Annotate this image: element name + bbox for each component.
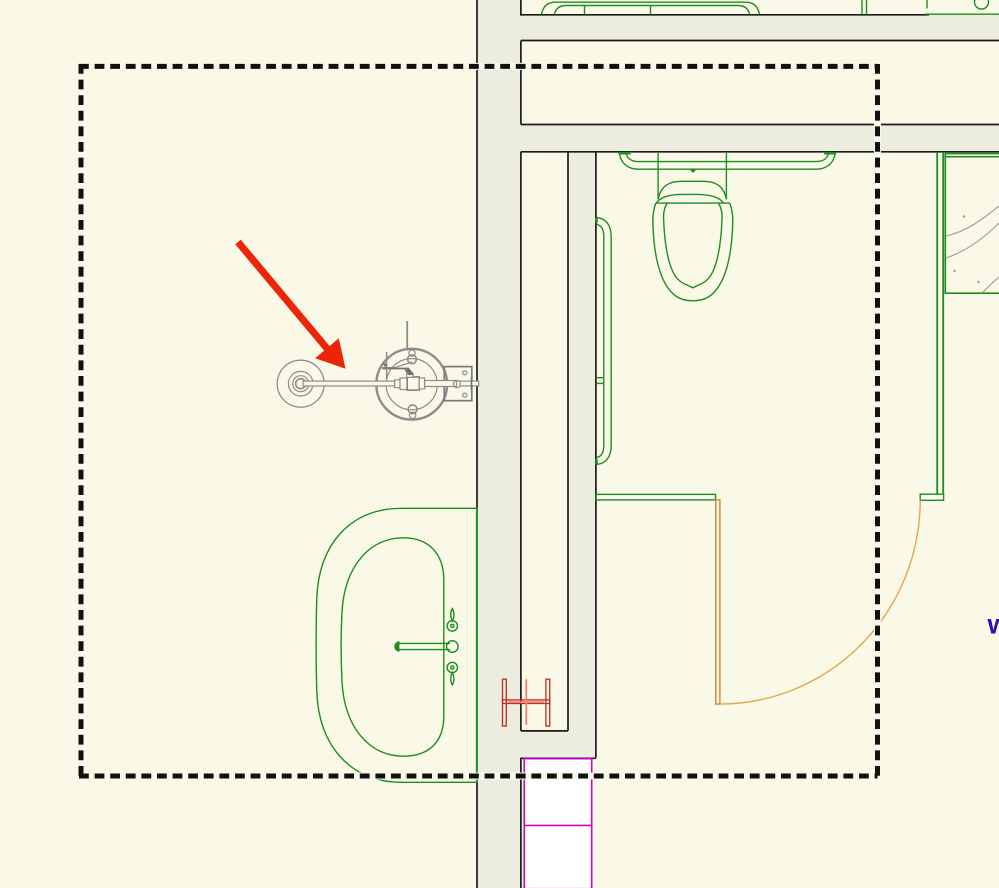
svg-text:w: w	[987, 608, 999, 639]
